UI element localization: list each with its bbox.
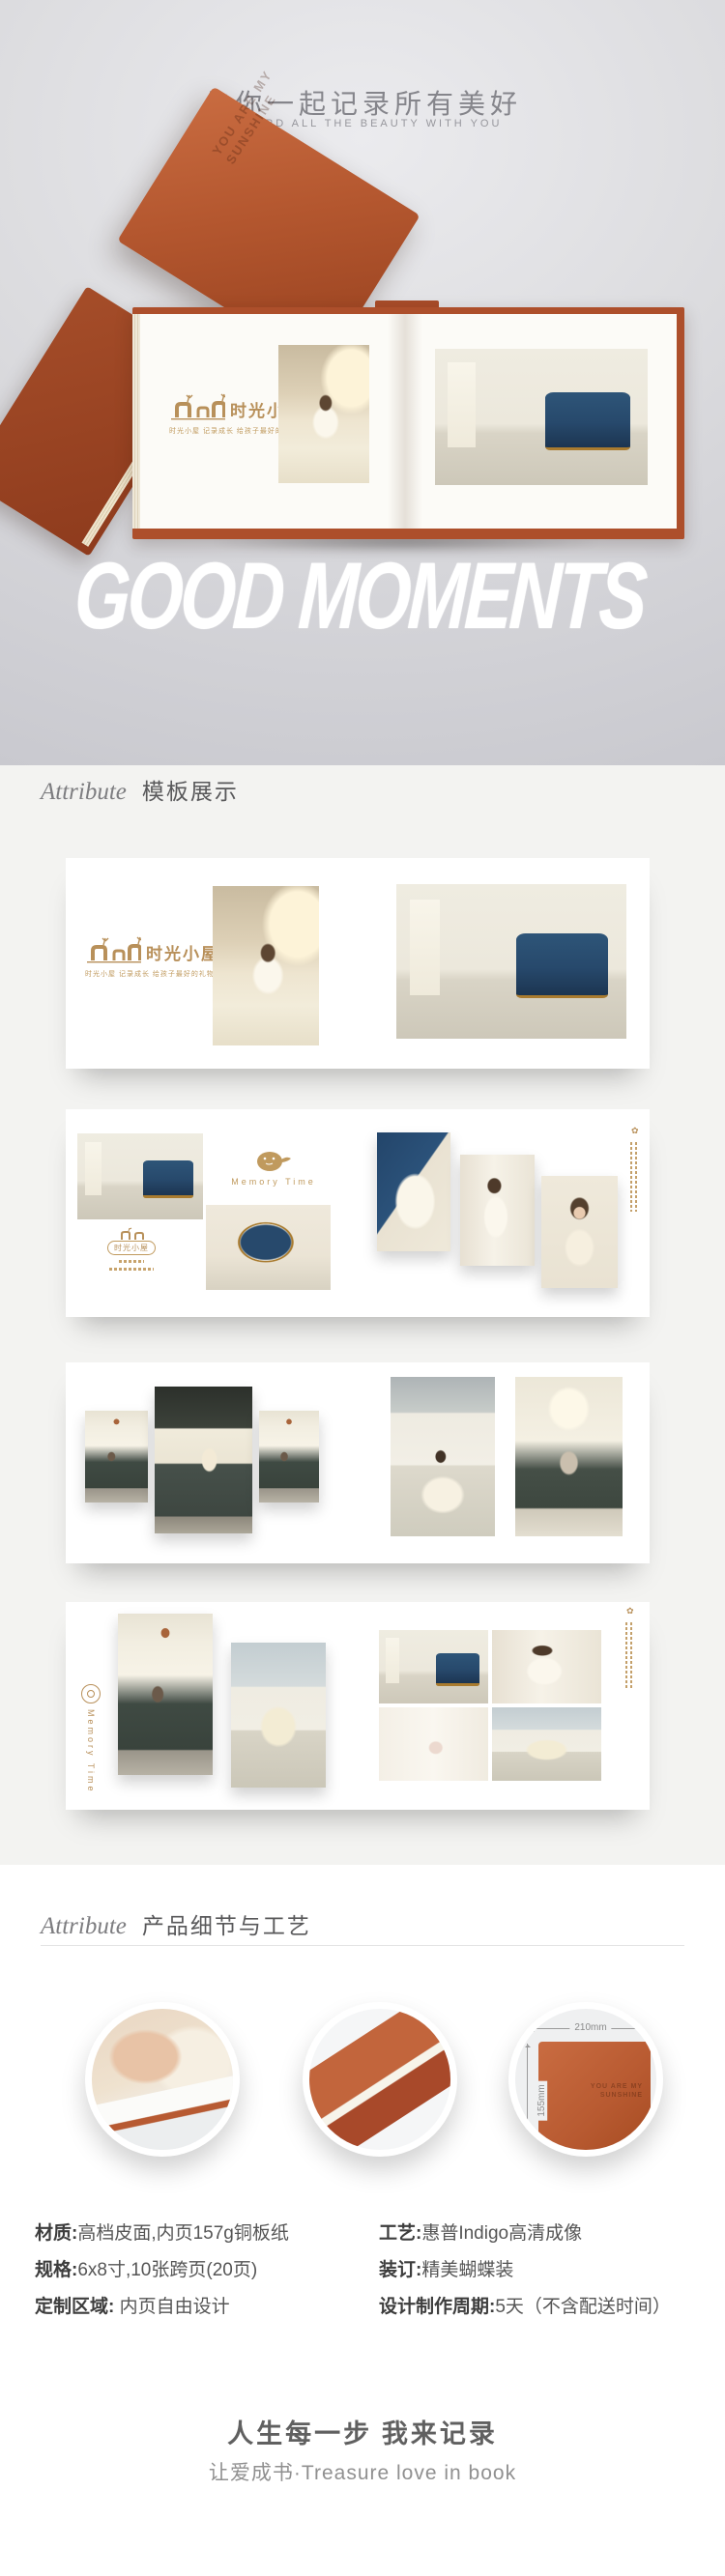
spec-binding: 装订:精美蝴蝶装 [379, 2255, 671, 2281]
hero-section: 与你一起记录所有美好 RECORD ALL THE BEAUTY WITH YO… [0, 0, 725, 765]
detail-circle-dimensions: YOU ARE MY SUNSHINE 210mm 155mm [508, 2002, 663, 2157]
brand-stamp: 时光小屋 [104, 1227, 159, 1271]
detail-circle-paper [85, 2002, 240, 2157]
leather-cover: YOU ARE MY SUNSHINE [538, 2042, 651, 2150]
memory-time-label: Memory Time [231, 1177, 316, 1187]
photo-girl-hand-glasses [541, 1176, 618, 1288]
whale-icon [254, 1148, 293, 1173]
template-spread-4: Memory Time ✿ [66, 1602, 650, 1810]
heading-divider [41, 1945, 684, 1946]
navy-sofa [545, 392, 630, 449]
photo-kitchen-window-girl [259, 1411, 319, 1503]
photo-grid-navy-sofa [379, 1630, 488, 1703]
templates-heading-cn: 模板展示 [142, 773, 239, 806]
photo-girl-on-bed [278, 345, 369, 483]
spec-material: 材质:高档皮面,内页157g铜板纸 [35, 2218, 289, 2245]
template-spread-2: 时光小屋 Memory Time ✿ [66, 1109, 650, 1317]
footer-slogan: 人生每一步 我来记录 [0, 2413, 725, 2450]
deer-icon [169, 392, 225, 421]
details-heading: Attribute 产品细节与工艺 [41, 1907, 311, 1940]
photo-girl-armchair [206, 1205, 331, 1290]
photo-girl-standing-kitchen [515, 1377, 623, 1536]
template-spread-3 [66, 1362, 650, 1563]
vertical-gold-text-decor [625, 1622, 634, 1690]
vertical-gold-text-decor [630, 1142, 639, 1212]
product-detail-page: 与你一起记录所有美好 RECORD ALL THE BEAUTY WITH YO… [0, 0, 725, 2576]
templates-heading: Attribute 模板展示 [41, 773, 239, 806]
stamp-microtext [109, 1268, 154, 1271]
memory-time-mark: Memory Time [242, 1148, 305, 1187]
stamp-name: 时光小屋 [107, 1241, 156, 1255]
spec-production-time: 设计制作周期:5天（不含配送时间） [379, 2292, 671, 2318]
templates-heading-en: Attribute [41, 779, 127, 806]
photo-cover-dimensions: YOU ARE MY SUNSHINE 210mm 155mm [515, 2009, 656, 2150]
spec-custom-area: 定制区域: 内页自由设计 [35, 2292, 289, 2318]
height-dimension-arrow: 155mm [527, 2044, 528, 2150]
height-dimension-label: 155mm [536, 2080, 547, 2120]
cover-embossed-text: YOU ARE MY SUNSHINE [591, 2082, 643, 2100]
photo-kitchen-window-girl [85, 1411, 148, 1503]
specs-right-column: 工艺:惠普Indigo高清成像 装订:精美蝴蝶装 设计制作周期:5天（不含配送时… [379, 2218, 671, 2318]
memory-time-vertical: Memory Time [81, 1684, 101, 1794]
specs-left-column: 材质:高档皮面,内页157g铜板纸 规格:6x8寸,10张跨页(20页) 定制区… [35, 2218, 289, 2318]
navy-sofa [143, 1160, 193, 1198]
footer-subslogan: 让爱成书·Treasure love in book [0, 2457, 725, 2486]
brand-tagline: 时光小屋 记录成长 给孩子最好的礼物 [85, 969, 219, 979]
navy-sofa [436, 1653, 479, 1685]
spec-craft: 工艺:惠普Indigo高清成像 [379, 2218, 671, 2245]
details-heading-en: Attribute [41, 1913, 127, 1940]
hero-title: 与你一起记录所有美好 [0, 83, 725, 122]
width-dimension-label: 210mm [569, 2022, 611, 2033]
photo-dark-kitchen [155, 1387, 252, 1533]
flower-icon: ✿ [626, 1607, 634, 1616]
memory-time-vertical-label: Memory Time [86, 1709, 96, 1794]
template-spread-1: 时光小屋 时光小屋 记录成长 给孩子最好的礼物 [66, 858, 650, 1069]
photo-girl-by-window [460, 1155, 535, 1266]
photo-leather-corner [309, 2009, 450, 2150]
photo-navy-sofa-room [77, 1133, 203, 1219]
photo-white-sofa-girl [391, 1377, 495, 1536]
photo-cream-loveseat [231, 1643, 326, 1788]
photo-girl-on-bed [213, 886, 319, 1045]
photo-grid-girl-combing [492, 1630, 601, 1703]
deer-icon [85, 935, 141, 964]
brand-logo: 时光小屋 时光小屋 记录成长 给孩子最好的礼物 [85, 935, 219, 979]
leather-cover-edge [309, 2009, 450, 2150]
spec-size: 规格:6x8寸,10张跨页(20页) [35, 2255, 289, 2281]
photo-grid-pale-room [379, 1707, 488, 1781]
deer-icon [117, 1227, 146, 1241]
page-edges [132, 314, 140, 529]
hero-subtitle: RECORD ALL THE BEAUTY WITH YOU [0, 118, 725, 129]
details-heading-cn: 产品细节与工艺 [142, 1907, 311, 1940]
detail-circle-leather-corner [303, 2002, 457, 2157]
flower-icon: ✿ [631, 1127, 639, 1135]
navy-sofa [516, 933, 608, 998]
photo-navy-sofa-room [435, 349, 648, 485]
brand-name: 时光小屋 [146, 940, 219, 964]
width-dimension-arrow: 210mm [531, 2028, 651, 2029]
photo-swan-pillow [377, 1132, 450, 1251]
spine-shadow [388, 314, 422, 529]
photo-navy-sofa-room [396, 884, 626, 1039]
photo-kitchen-window-girl [118, 1614, 213, 1775]
photo-baby-foot-pages [92, 2009, 233, 2150]
open-album: 时光小屋 时光小屋 记录成长 给孩子最好的礼物 [132, 307, 684, 539]
snail-ring-icon [81, 1684, 101, 1703]
brush-headline: GOOD MOMENTS [0, 541, 725, 649]
album-page-edge [92, 2073, 233, 2150]
photo-grid-white-couch [492, 1707, 601, 1781]
stamp-microtext [119, 1260, 144, 1263]
